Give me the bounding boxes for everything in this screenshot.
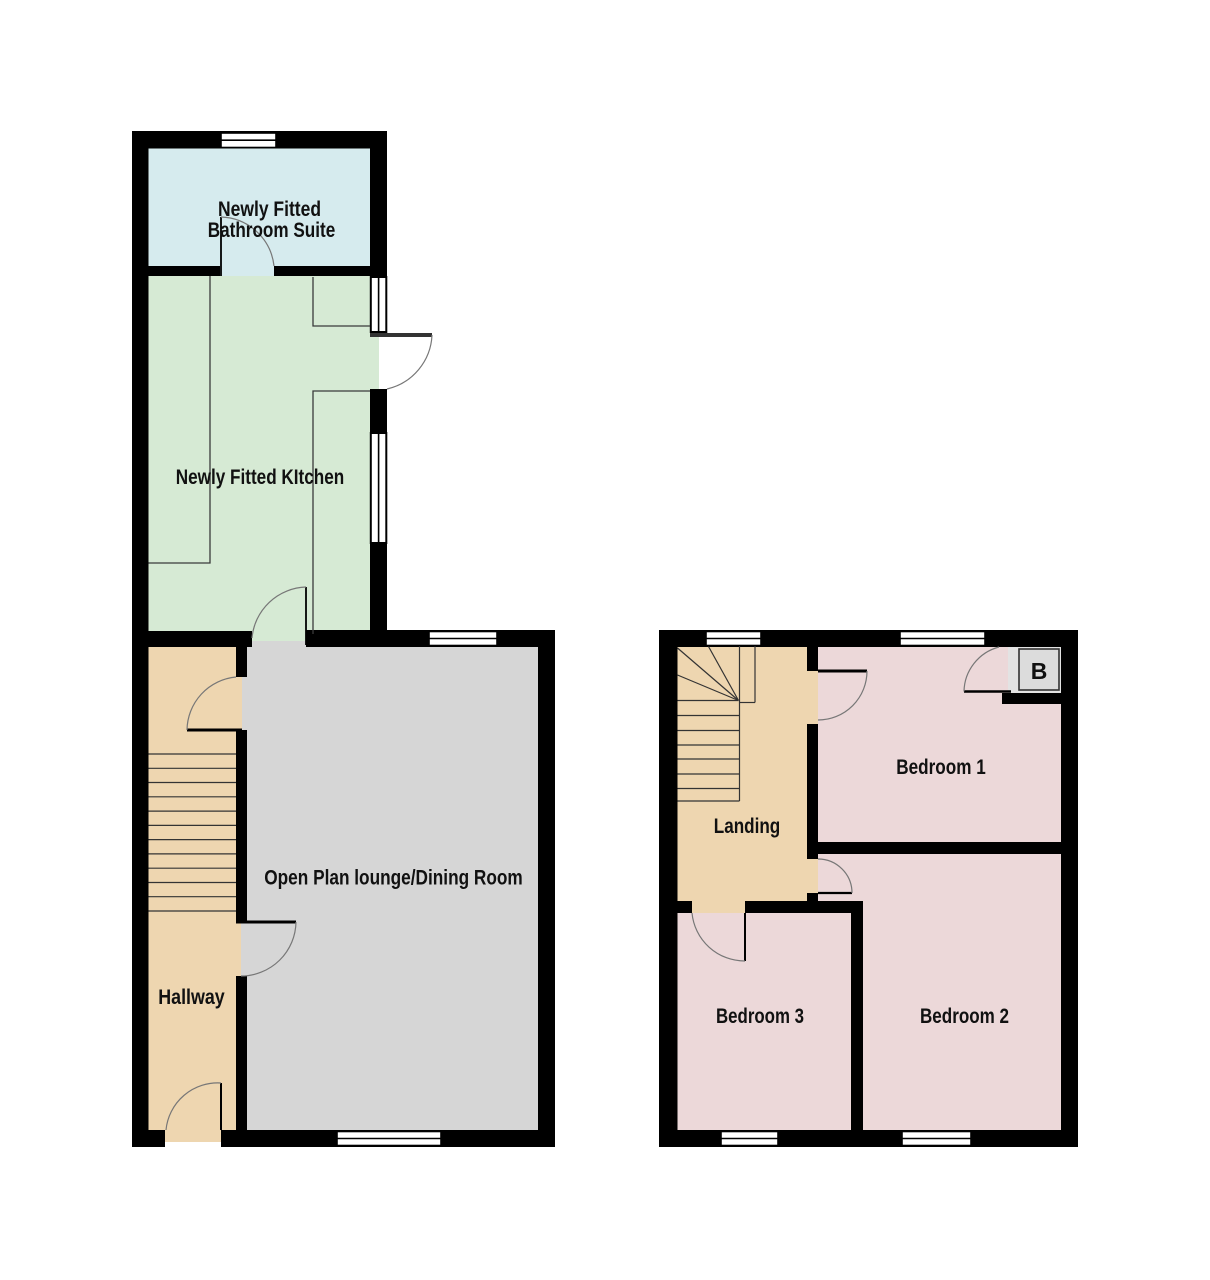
- svg-text:B: B: [1031, 658, 1048, 684]
- svg-text:Bedroom 1: Bedroom 1: [896, 756, 986, 779]
- svg-text:Hallway: Hallway: [158, 986, 225, 1009]
- svg-text:Landing: Landing: [714, 815, 781, 838]
- svg-text:Newly Fitted: Newly Fitted: [218, 198, 321, 221]
- svg-text:Open Plan lounge/Dining Room: Open Plan lounge/Dining Room: [264, 867, 523, 890]
- svg-text:Bedroom 2: Bedroom 2: [920, 1005, 1009, 1028]
- svg-text:Bedroom 3: Bedroom 3: [716, 1005, 804, 1028]
- svg-text:Newly Fitted KItchen: Newly Fitted KItchen: [176, 466, 345, 489]
- svg-text:Bathroom Suite: Bathroom Suite: [208, 219, 336, 242]
